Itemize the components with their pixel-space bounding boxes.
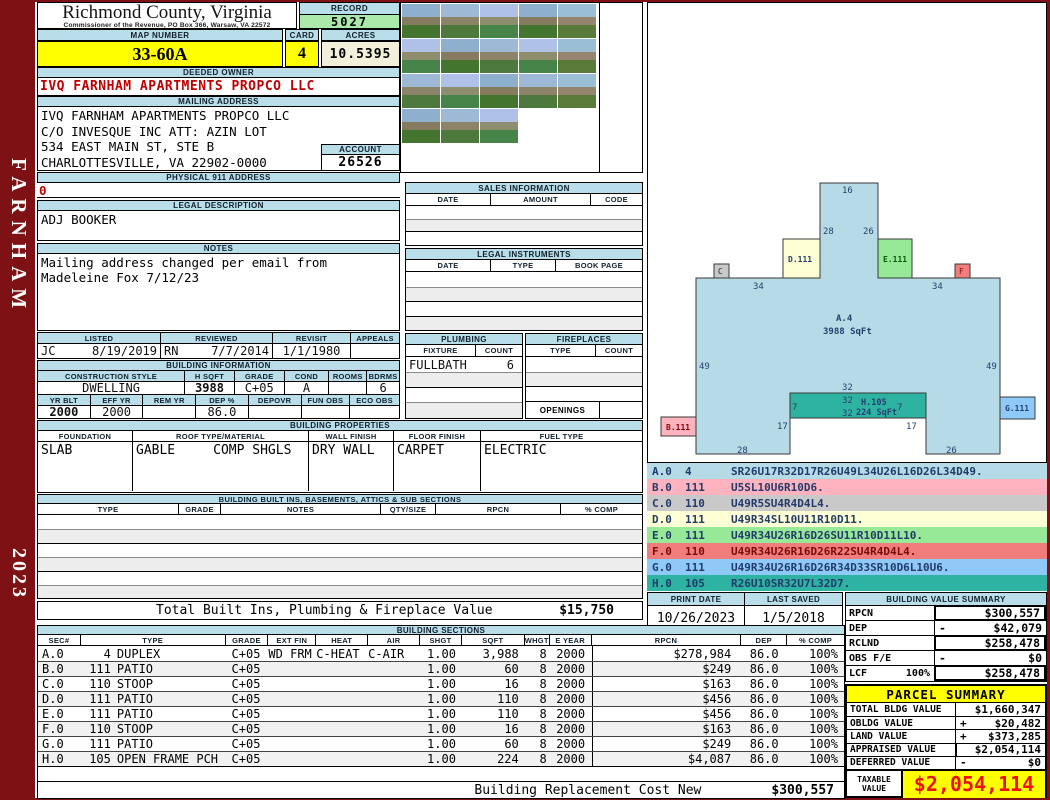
property-photo[interactable] [402, 109, 440, 143]
dim-label: 49 [986, 362, 997, 372]
sketch-code-row: G.0111U49R34U26R16D26R34D33SR10D6L10U6. [647, 559, 1047, 575]
built-in-empty-row [38, 585, 642, 598]
property-photo[interactable] [480, 74, 518, 108]
funobs-header: FUN OBS [302, 395, 351, 406]
property-photo[interactable] [558, 74, 596, 108]
built-in-empty-row [38, 529, 642, 543]
ecoobs-value [350, 406, 399, 418]
dim-label: 17 [777, 422, 788, 432]
built-in-rpcn-header: RPCN [436, 504, 561, 515]
bvs-row: RPCN $300,557 [846, 605, 1046, 620]
parcel-summary: PARCEL SUMMARY TOTAL BLDG VALUE $1,660,3… [845, 684, 1047, 798]
dim-label: 34 [932, 282, 943, 292]
property-photo[interactable] [558, 4, 596, 38]
wall-finish-value: DRY WALL [309, 442, 394, 491]
remyr-header: REM YR [143, 395, 196, 406]
fixture-count-header: COUNT [476, 345, 522, 357]
bdrms-value: 6 [367, 382, 399, 394]
sketch-main-sqft: 3988 SqFt [823, 327, 872, 337]
property-photo[interactable] [519, 4, 557, 38]
property-photo[interactable] [441, 74, 479, 108]
bvs-row: OBS F/E -$0 [846, 650, 1046, 665]
sketch-code-row: H.0105R26U10SR32U7L32D7. [647, 575, 1047, 591]
sketch-h-sqft: 224 SqFt [856, 408, 897, 418]
dim-label: 26 [946, 446, 957, 456]
parcel-row: DEFERRED VALUE -$0 [847, 756, 1045, 769]
sketch-code-row: F.0110U49R34U26R16D26R22SU4R4D4L4. [647, 543, 1047, 559]
dim-label: 7 [792, 403, 797, 413]
built-in-notes-header: NOTES [221, 504, 381, 515]
built-ins-total-label: Total Built Ins, Plumbing & Fireplace Va… [156, 603, 493, 618]
col-header: SHGT [420, 635, 462, 646]
grade-value: C+05 [235, 382, 285, 394]
building-value-summary: BUILDING VALUE SUMMARY RPCN $300,557 DEP… [845, 592, 1047, 682]
sketch-g-label: G.111 [1005, 404, 1029, 413]
listed-header: LISTED [38, 333, 161, 344]
sketch-code-row: E.0111U49R34U26R16D26SU11R10D11L10. [647, 527, 1047, 543]
bvs-row: LCF100% $258,478 [846, 665, 1046, 680]
rooms-header: ROOMS [329, 371, 367, 382]
map-number-header: MAP NUMBER [37, 29, 283, 41]
instrument-type-header: TYPE [491, 260, 556, 272]
fireplace-count-header: COUNT [596, 345, 642, 357]
roof-header: ROOF TYPE/MATERIAL [133, 431, 309, 442]
building-properties-table: FOUNDATION ROOF TYPE/MATERIAL WALL FINIS… [37, 431, 643, 493]
property-photo[interactable] [519, 74, 557, 108]
sketch-f-label: F [959, 267, 964, 276]
funobs-value [302, 406, 351, 418]
wall-finish-header: WALL FINISH [309, 431, 394, 442]
col-header: % COMP [787, 635, 844, 646]
building-sketch: 16 28 26 34 34 49 49 32 32 32 7 7 17 17 … [648, 3, 1046, 462]
record-header: RECORD [299, 2, 400, 15]
account-header: ACCOUNT [321, 144, 400, 155]
built-ins-total-row: Total Built Ins, Plumbing & Fireplace Va… [37, 601, 643, 620]
built-ins-header: BUILDING BUILT INS, BASEMENTS, ATTICS & … [37, 494, 643, 504]
col-header: EXT FIN [268, 635, 316, 646]
property-photo[interactable] [402, 4, 440, 38]
legal-description-header: LEGAL DESCRIPTION [37, 200, 400, 211]
photo-panel [400, 2, 643, 173]
property-photo[interactable] [441, 109, 479, 143]
sales-information-table: SALES INFORMATION DATE AMOUNT CODE [405, 182, 643, 246]
record-value: 5027 [299, 15, 400, 29]
revisit-value: 1/1/1980 [273, 344, 351, 358]
taxable-value-label: TAXABLEVALUE [847, 771, 903, 798]
dim-label: 49 [699, 362, 710, 372]
replacement-cost-row: Building Replacement Cost New $300,557 [37, 781, 845, 799]
card-header: CARD [285, 29, 319, 41]
dim-label: 28 [737, 446, 748, 456]
fireplaces-header: FIREPLACES [526, 334, 642, 345]
map-number-value: 33-60A [37, 41, 283, 67]
parcel-row: APPRAISED VALUE $2,054,114 [847, 743, 1045, 756]
dim-label: 32 [842, 383, 853, 393]
reviewed-by: RN [164, 344, 178, 358]
photo-grid [401, 3, 600, 172]
plumbing-empty-row [406, 372, 522, 387]
parcel-summary-header: PARCEL SUMMARY [847, 686, 1045, 703]
physical-address-header: PHYSICAL 911 ADDRESS [37, 172, 400, 183]
fuel-type-value: ELECTRIC [481, 442, 642, 491]
record-box: RECORD 5027 [299, 2, 400, 29]
instrument-empty-row [406, 316, 642, 330]
depovr-header: DEPOVR [249, 395, 302, 406]
col-header: E YEAR [550, 635, 592, 646]
bvs-row: DEP -$42,079 [846, 620, 1046, 635]
county-header-box: Richmond County, Virginia Commissioner o… [37, 2, 297, 29]
col-header: SQFT [462, 635, 525, 646]
sketch-panel: 16 28 26 34 34 49 49 32 32 32 7 7 17 17 … [647, 2, 1047, 463]
plumbing-header: PLUMBING [406, 334, 522, 345]
property-photo[interactable] [480, 39, 518, 73]
building-information-table: CONSTRUCTION STYLE H SQFT GRADE COND ROO… [37, 371, 400, 419]
col-header: DEP [741, 635, 787, 646]
fixture-header: FIXTURE [406, 345, 476, 357]
instrument-empty-row [406, 272, 642, 287]
property-photo[interactable] [480, 109, 518, 143]
sketch-main-label: A.4 [836, 314, 853, 324]
fixture-count-value: 6 [476, 357, 522, 372]
property-photo[interactable] [519, 39, 557, 73]
property-photo[interactable] [441, 39, 479, 73]
legal-instruments-header: LEGAL INSTRUMENTS [406, 249, 642, 260]
property-photo[interactable] [558, 39, 596, 73]
table-row: E.0111PATIOC+051.0011082000$45686.0100% [38, 706, 844, 721]
fuel-type-header: FUEL TYPE [481, 431, 642, 442]
parcel-row: OBLDG VALUE +$20,482 [847, 716, 1045, 729]
dim-label: 28 [823, 227, 834, 237]
foundation-value: SLAB [38, 442, 133, 491]
built-in-grade-header: GRADE [179, 504, 221, 515]
appeals-header: APPEALS [351, 333, 399, 344]
sketch-code-row: B.0111U5SL10U6R10D6. [647, 479, 1047, 495]
property-photo[interactable] [480, 4, 518, 38]
roof-value: GABLE COMP SHGLS [133, 442, 309, 491]
sketch-b-label: B.111 [666, 423, 690, 432]
mailing-address-header: MAILING ADDRESS [37, 96, 400, 107]
taxable-value: $2,054,114 [903, 771, 1045, 798]
fireplace-type-header: TYPE [526, 345, 596, 357]
plumbing-empty-row [406, 387, 522, 402]
yrblt-value: 2000 [38, 406, 91, 418]
floor-finish-header: FLOOR FINISH [394, 431, 481, 442]
notes-header: NOTES [37, 243, 400, 254]
sketch-c-label: C [718, 267, 723, 276]
roof-material-value: COMP SHGLS [213, 443, 291, 458]
built-in-empty-row [38, 557, 642, 571]
floor-finish-value: CARPET [394, 442, 481, 491]
built-ins-total-value: $15,750 [559, 603, 614, 618]
built-in-type-header: TYPE [38, 504, 179, 515]
building-information-header: BUILDING INFORMATION [37, 360, 400, 371]
deeded-owner-header: DEEDED OWNER [37, 67, 400, 78]
fireplace-empty-row [526, 386, 642, 401]
fixture-value: FULLBATH [406, 357, 476, 372]
account-value: 26526 [321, 155, 400, 171]
fireplace-empty-row [526, 372, 642, 386]
property-photo[interactable] [402, 74, 440, 108]
bvs-row: RCLND $258,478 [846, 635, 1046, 650]
legal-instruments-table: LEGAL INSTRUMENTS DATE TYPE BOOK PAGE [405, 248, 643, 331]
building-sections-header: BUILDING SECTIONS [37, 625, 845, 635]
dep-value: 86.0 [196, 406, 249, 418]
sales-empty-row [406, 231, 642, 245]
dim-label: 26 [863, 227, 874, 237]
parcel-row: TOTAL BLDG VALUE $1,660,347 [847, 703, 1045, 716]
table-row: F.0110STOOPC+051.001682000$16386.0100% [38, 721, 844, 736]
sales-empty-row [406, 219, 642, 231]
table-row: D.0111PATIOC+051.0011082000$45686.0100% [38, 691, 844, 706]
depovr-value [249, 406, 302, 418]
instrument-bookpage-header: BOOK PAGE [556, 260, 642, 272]
built-in-empty-row [38, 543, 642, 557]
table-row: H.0105OPEN FRAME PCHC+051.0022482000$4,0… [38, 751, 844, 766]
listed-date: 8/19/2019 [92, 344, 157, 358]
remyr-value [143, 406, 196, 418]
dim-label: 7 [897, 403, 902, 413]
building-value-summary-header: BUILDING VALUE SUMMARY [846, 593, 1046, 605]
col-header: AIR [368, 635, 420, 646]
ecoobs-header: ECO OBS [350, 395, 399, 406]
table-row: B.0111PATIOC+051.006082000$24986.0100% [38, 661, 844, 676]
sales-information-header: SALES INFORMATION [406, 183, 642, 194]
plumbing-empty-row [406, 402, 522, 418]
cond-value: A [285, 382, 330, 394]
sketch-d-label: D.111 [788, 255, 812, 264]
dim-label: 34 [753, 282, 764, 292]
county-subtitle: Commissioner of the Revenue, PO Box 366,… [38, 22, 296, 29]
property-photo[interactable] [441, 4, 479, 38]
rooms-value [329, 382, 367, 394]
built-in-qty-header: QTY/SIZE [381, 504, 436, 515]
taxable-value-row: TAXABLEVALUE $2,054,114 [847, 769, 1045, 798]
table-row: G.0111PATIOC+051.006082000$24986.0100% [38, 736, 844, 751]
fireplace-empty-row [526, 357, 642, 372]
building-properties-header: BUILDING PROPERTIES [37, 420, 643, 431]
openings-label: OPENINGS [526, 402, 600, 418]
revisit-header: REVISIT [273, 333, 351, 344]
col-header: RPCN [592, 635, 742, 646]
sidebar-tax-year: 2023 [7, 548, 30, 600]
sketch-code-row: A.04SR26U17R32D17R26U49L34U26L16D26L34D4… [647, 463, 1047, 479]
building-sections-rows: A.04DUPLEXC+05WD FRMC-HEATC-AIR1.003,988… [37, 646, 845, 766]
foundation-header: FOUNDATION [38, 431, 133, 442]
reviewed-header: REVIEWED [161, 333, 273, 344]
sales-code-header: CODE [591, 194, 642, 206]
built-in-empty-row [38, 515, 642, 529]
notes-text: Mailing address changed per email from M… [37, 254, 400, 331]
visit-history-table: LISTED REVIEWED REVISIT APPEALS JC8/19/2… [37, 332, 400, 359]
dim-label: 32 [842, 396, 853, 406]
instrument-empty-row [406, 287, 642, 301]
last-saved-header: LAST SAVED [745, 593, 842, 606]
building-sections-column-headers: SEC# TYPE GRADE EXT FIN HEAT AIR SHGT SQ… [37, 635, 845, 646]
dim-label: 16 [842, 186, 853, 196]
property-photo[interactable] [402, 39, 440, 73]
plumbing-table: PLUMBING FIXTURE COUNT FULLBATH 6 [405, 333, 523, 419]
sketch-code-row: C.0110U49R5SU4R4D4L4. [647, 495, 1047, 511]
property-record-card: FARNHAM 2023 Richmond County, Virginia C… [0, 0, 1050, 800]
replacement-cost-label: Building Replacement Cost New [474, 783, 701, 798]
sketch-h-label: H.105 [861, 398, 887, 408]
instrument-date-header: DATE [406, 260, 491, 272]
sidebar-parcel-name: FARNHAM [6, 158, 31, 315]
mailing-line: IVQ FARNHAM APARTMENTS PROPCO LLC [41, 108, 399, 124]
sales-empty-row [406, 206, 642, 219]
acres-value: 10.5395 [321, 41, 400, 67]
built-in-empty-row [38, 571, 642, 585]
appeals-value [351, 344, 399, 358]
dim-label: 17 [906, 422, 917, 432]
reviewed-value: RN7/7/2014 [161, 344, 273, 358]
replacement-cost-value: $300,557 [771, 783, 834, 798]
col-header: GRADE [226, 635, 269, 646]
hsqft-value: 3988 [185, 382, 235, 394]
construction-style-value: DWELLING [38, 382, 185, 394]
dim-label: 32 [842, 409, 853, 419]
sketch-codes-table: A.04SR26U17R32D17R26U49L34U26L16D26L34D4… [647, 463, 1047, 591]
parcel-row: LAND VALUE +$373,285 [847, 729, 1045, 742]
col-header: TYPE [81, 635, 226, 646]
listed-value: JC8/19/2019 [38, 344, 161, 358]
legal-description-value: ADJ BOOKER [37, 211, 400, 241]
reviewed-date: 7/7/2014 [211, 344, 269, 358]
table-row: C.0110STOOPC+051.001682000$16386.0100% [38, 676, 844, 691]
listed-by: JC [41, 344, 55, 358]
table-row: A.04DUPLEXC+05WD FRMC-HEATC-AIR1.003,988… [38, 646, 844, 661]
deeded-owner-value: IVQ FARNHAM APARTMENTS PROPCO LLC [37, 78, 400, 96]
sketch-e-label: E.111 [883, 255, 907, 264]
sales-date-header: DATE [406, 194, 491, 206]
card-value: 4 [285, 41, 319, 67]
fireplaces-table: FIREPLACES TYPE COUNT OPENINGS [525, 333, 643, 419]
mailing-line: C/O INVESQUE INC ATT: AZIN LOT [41, 124, 399, 140]
built-in-comp-header: % COMP [561, 504, 642, 515]
built-ins-table: TYPE GRADE NOTES QTY/SIZE RPCN % COMP [37, 504, 643, 599]
acres-header: ACRES [321, 29, 400, 41]
effyr-value: 2000 [91, 406, 144, 418]
county-title: Richmond County, Virginia [38, 3, 296, 22]
col-header: HEAT [316, 635, 368, 646]
roof-type-value: GABLE [136, 443, 175, 458]
instrument-empty-row [406, 301, 642, 316]
physical-address-value: 0 [37, 183, 400, 198]
col-header: WHGT [525, 635, 550, 646]
col-header: SEC# [38, 635, 81, 646]
print-date-header: PRINT DATE [648, 593, 745, 606]
building-sections-empty-row [37, 766, 845, 781]
sales-amount-header: AMOUNT [491, 194, 591, 206]
sketch-code-row: D.0111U49R34SL10U11R10D11. [647, 511, 1047, 527]
